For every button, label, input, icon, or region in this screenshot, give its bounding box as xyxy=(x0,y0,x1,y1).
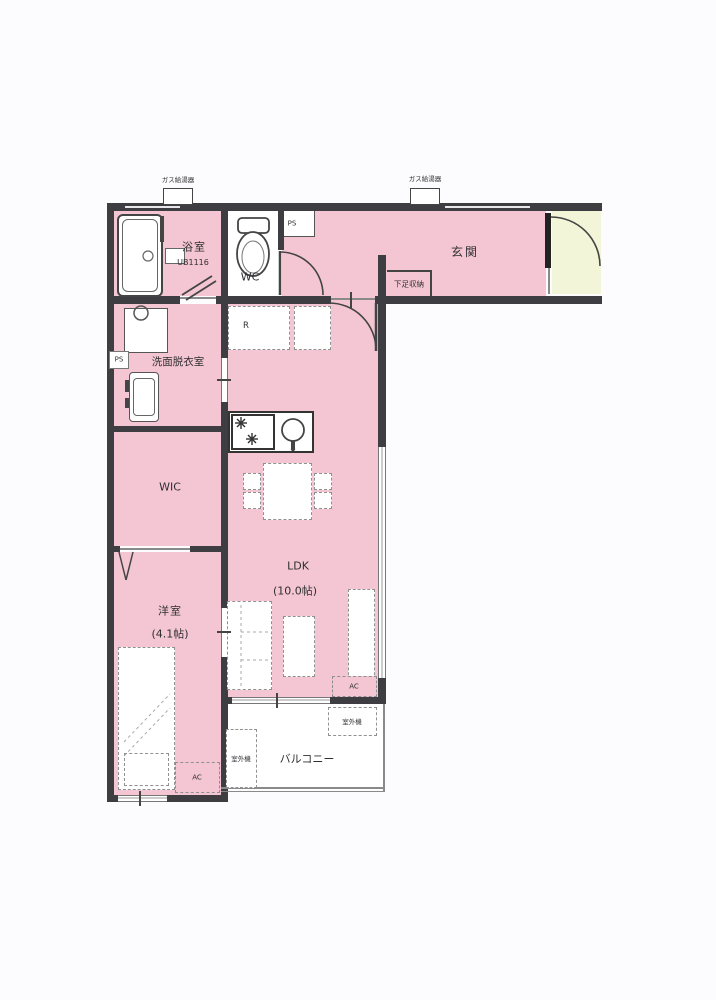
wall-wic-bedroom-b xyxy=(190,546,228,552)
dining-chair-1 xyxy=(243,473,261,490)
washroom-sliding-door xyxy=(221,358,228,402)
dining-chair-4 xyxy=(314,492,332,509)
ac-label-ldk: AC xyxy=(349,684,359,691)
window-slit-bath xyxy=(125,206,180,208)
outdoor-unit-label-right: 室外機 xyxy=(342,719,362,726)
room-label-washroom: 洗面脱衣室 xyxy=(152,357,205,368)
room-label-wic: WIC xyxy=(159,482,181,493)
vanity-faucet xyxy=(125,380,129,392)
sofa xyxy=(227,601,272,690)
wall-topwing-bottom-c xyxy=(375,296,602,304)
vanity-sink-inner xyxy=(133,378,155,416)
tv-board xyxy=(348,589,375,690)
wall-center-a xyxy=(221,203,228,358)
refrigerator-label: R xyxy=(243,322,249,331)
cupboard-space xyxy=(294,306,331,350)
wall-wic-bedroom-a xyxy=(107,546,120,552)
window-slit-entrance xyxy=(445,206,530,208)
outdoor-unit-label-left: 室外機 xyxy=(231,756,251,763)
balcony-edge-right xyxy=(383,704,385,792)
window-ldk-balcony xyxy=(232,697,330,704)
window-ldk-east xyxy=(378,447,386,678)
dining-chair-3 xyxy=(314,473,332,490)
vanity-faucet-2 xyxy=(125,398,129,408)
ac-label-bedroom: AC xyxy=(192,775,202,782)
water-heater-label-1: ガス給湯器 xyxy=(162,177,195,184)
wall-center-b xyxy=(221,402,228,608)
floor-plan: 浴室 UB1116 WC PS 玄関 下足収納 ガス給湯器 ガス給湯器 洗面脱衣… xyxy=(0,0,716,1000)
water-heater-box-2 xyxy=(410,188,440,205)
bath-door-header xyxy=(180,297,216,299)
room-label-entrance: 玄関 xyxy=(451,246,479,258)
room-size-ldk: (10.0帖) xyxy=(273,586,317,597)
washing-machine xyxy=(124,308,168,353)
window-bedroom-south xyxy=(118,795,167,802)
wall-ldk-balcony-b xyxy=(330,697,386,704)
wall-bottom-b xyxy=(167,795,228,802)
bath-faucet xyxy=(160,216,164,242)
bath-unit-label: UB1116 xyxy=(177,259,209,267)
entrance-door-jamb xyxy=(548,268,550,294)
room-label-balcony: バルコニー xyxy=(280,754,335,765)
wall-topwing-bottom-a xyxy=(107,296,180,304)
water-heater-box-1 xyxy=(163,188,193,205)
entrance-door-leaf xyxy=(545,213,551,268)
ldk-door-header xyxy=(331,298,375,300)
low-table xyxy=(283,616,315,677)
bathtub-inner xyxy=(122,219,158,292)
wall-left xyxy=(107,203,114,802)
wall-washroom-wic xyxy=(107,426,228,432)
wall-bottom-a xyxy=(107,795,118,802)
water-heater-label-2: ガス給湯器 xyxy=(409,176,442,183)
wall-ldk-right-a xyxy=(378,296,386,447)
dining-table xyxy=(263,463,312,520)
pipe-space-washroom-label: PS xyxy=(115,357,124,364)
stove xyxy=(231,414,275,450)
balcony-edge-bottom-2 xyxy=(221,791,385,792)
refrigerator-space xyxy=(228,306,290,350)
room-label-bedroom: 洋室 xyxy=(158,606,182,617)
wall-ldk-balcony-a xyxy=(221,697,232,704)
shoe-storage-label: 下足収納 xyxy=(394,280,424,288)
room-label-wc: WC xyxy=(241,272,260,283)
dining-chair-2 xyxy=(243,492,261,509)
wic-door-header xyxy=(120,548,190,550)
room-size-bedroom: (4.1帖) xyxy=(151,629,188,640)
room-label-ldk: LDK xyxy=(287,561,309,572)
wall-topwing-bottom-b xyxy=(216,296,331,304)
room-label-bath: 浴室 xyxy=(182,242,206,253)
pipe-space-hall-label: PS xyxy=(288,221,297,228)
entrance-porch-floor xyxy=(552,211,601,294)
bed-pillow xyxy=(124,753,169,786)
